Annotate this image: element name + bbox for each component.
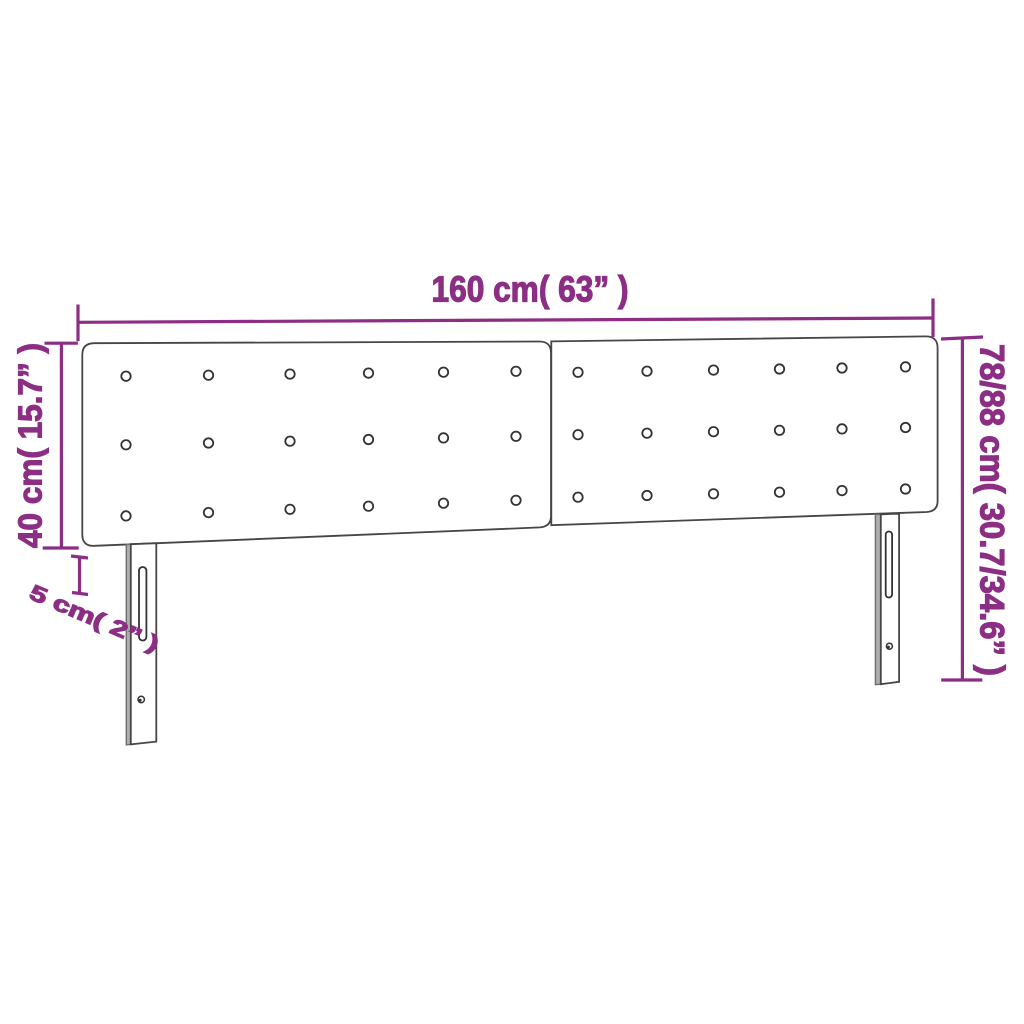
svg-text:40 cm( 15.7” ): 40 cm( 15.7” ) [12, 343, 49, 548]
svg-text:160 cm( 63” ): 160 cm( 63” ) [432, 269, 629, 310]
svg-text:78/88 cm( 30.7/34.6” ): 78/88 cm( 30.7/34.6” ) [973, 344, 1011, 676]
